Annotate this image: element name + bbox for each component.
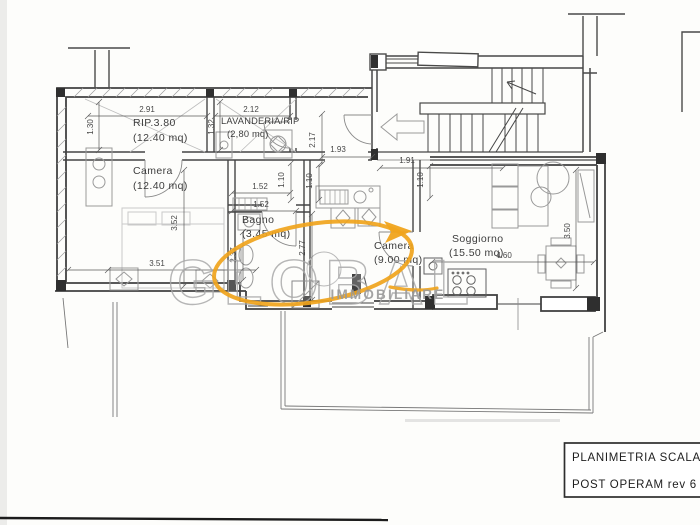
dim-hall-height: 2.17 bbox=[308, 132, 317, 148]
top-beam bbox=[418, 52, 478, 67]
chimney-left bbox=[68, 48, 130, 88]
dining-table bbox=[546, 246, 576, 280]
sofa-cushion bbox=[492, 164, 518, 186]
radiator bbox=[578, 170, 594, 222]
dim-rip-top: 2.91 bbox=[139, 105, 155, 114]
dim-bagno-top-b: 1.52 bbox=[253, 200, 269, 209]
dim-soggiorno-left: 1.10 bbox=[416, 172, 425, 188]
room-label-bagno-name: Bagno bbox=[242, 214, 274, 226]
nightstand bbox=[110, 268, 138, 290]
dim-lav-left: 1.32 bbox=[207, 119, 216, 135]
plant bbox=[537, 162, 569, 194]
room-label-lavanderia-name: LAVANDERIA/RIP bbox=[221, 116, 299, 126]
scan-left-band bbox=[0, 0, 7, 525]
room-label-camera1-area: (12.40 mq) bbox=[133, 180, 188, 192]
wardrobe bbox=[86, 148, 112, 206]
terrace-boundary-line bbox=[113, 302, 117, 417]
dim-bagno-side: 1.10 bbox=[277, 172, 286, 188]
entry-direction-arrow-icon bbox=[381, 114, 424, 140]
dim-camera1-height: 3.52 bbox=[170, 215, 179, 231]
room-labels: RIP.3.80 (12.40 mq) LAVANDERIA/RIP (2,80… bbox=[133, 116, 504, 266]
dim-soggiorno-right: 3.50 bbox=[563, 223, 572, 239]
dim-hall-width: 1.93 bbox=[330, 145, 346, 154]
stair-treads-lower bbox=[428, 114, 538, 152]
stair-treads-upper bbox=[492, 68, 543, 103]
sofa-seat bbox=[518, 166, 548, 226]
dim-lav-top: 2.12 bbox=[243, 105, 259, 114]
side-table bbox=[331, 208, 355, 228]
title-block: PLANIMETRIA SCALA 1: POST OPERAM rev 6 bbox=[565, 443, 700, 497]
watermark-subtitle-text: IMMOBILIARE bbox=[331, 287, 446, 302]
scanned-floor-plan-page: 2.91 1.30 2.12 1.32 3.52 3.51 1.52 1.52 … bbox=[0, 0, 700, 525]
door-entrance bbox=[344, 115, 372, 144]
scan-bottom-line bbox=[0, 518, 388, 520]
room-label-rip-area: (12.40 mq) bbox=[133, 132, 188, 144]
dim-hall-side: 1.10 bbox=[305, 173, 314, 189]
floor-plan-drawing: 2.91 1.30 2.12 1.32 3.52 3.51 1.52 1.52 … bbox=[0, 0, 700, 525]
scan-smudge bbox=[405, 419, 560, 422]
stair-landing bbox=[420, 103, 545, 114]
dim-rip-left: 1.30 bbox=[86, 119, 95, 135]
chimney-right bbox=[568, 14, 625, 73]
dim-camera1-width: 3.51 bbox=[149, 259, 165, 268]
room-label-rip-name: RIP.3.80 bbox=[133, 117, 176, 129]
title-block-line1: PLANIMETRIA SCALA 1: bbox=[572, 452, 700, 464]
dim-bagno-top-a: 1.52 bbox=[252, 182, 268, 191]
stairwell bbox=[372, 56, 605, 160]
sofa-cushion bbox=[492, 187, 518, 209]
title-block-line2: POST OPERAM rev 6 bbox=[572, 479, 697, 491]
dim-soggiorno-top: 1.91 bbox=[399, 156, 415, 165]
neighbour-outline bbox=[682, 32, 700, 112]
room-label-soggiorno-name: Soggiorno bbox=[452, 233, 503, 245]
sofa-cushion bbox=[492, 210, 518, 228]
room-label-camera1-name: Camera bbox=[133, 165, 173, 177]
kitchen-sink bbox=[354, 191, 366, 203]
agency-watermark: GLOBAL IMMOBILIARE bbox=[168, 209, 476, 318]
room-label-lavanderia-area: (2,80 mq) bbox=[227, 129, 269, 139]
